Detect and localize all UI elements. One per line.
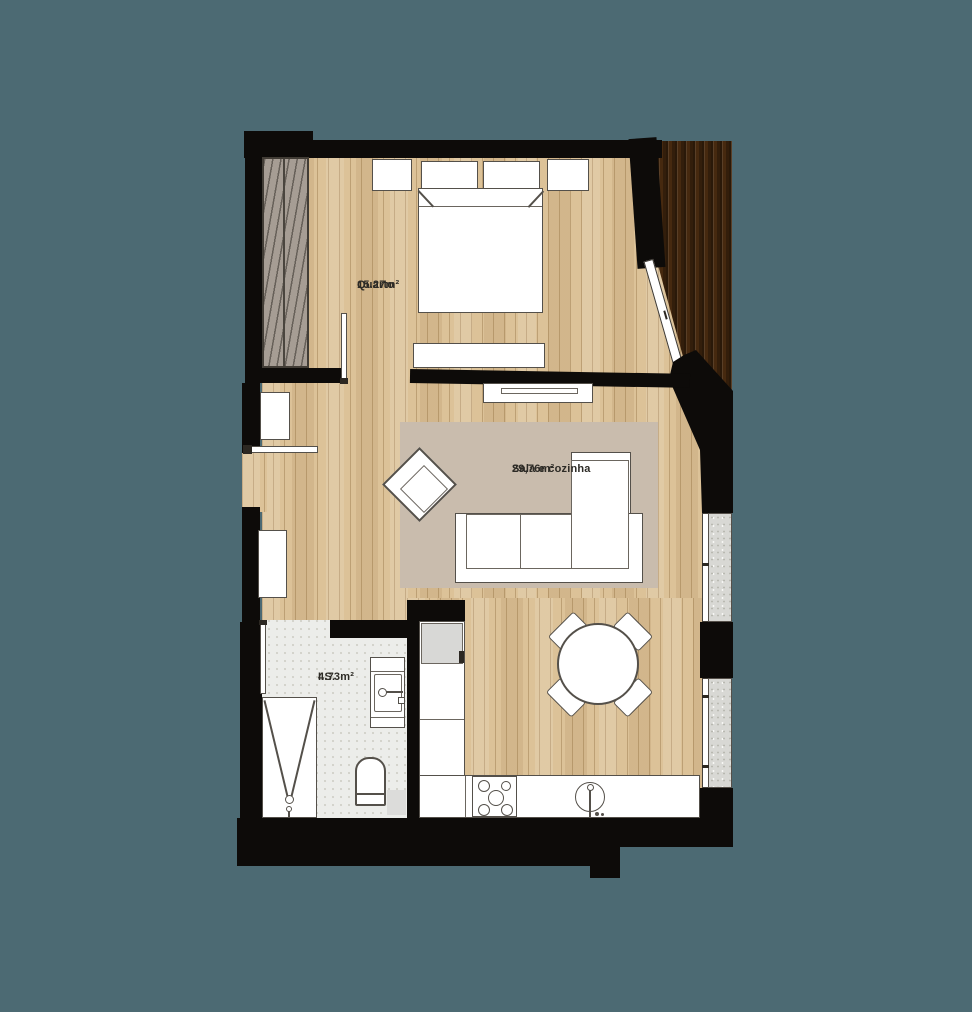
bedroom-door-hinge [340, 378, 348, 384]
vanity-bottom-divider [371, 717, 404, 718]
cooktop-burner [478, 804, 490, 816]
dining-table [557, 623, 639, 705]
vanity-control [398, 697, 405, 704]
shower-valve-stem [288, 811, 290, 818]
bottom-wall-strip [237, 818, 702, 833]
cooktop-burner [488, 790, 504, 806]
bedroom-dresser [413, 343, 545, 368]
sideboard-slot [501, 388, 578, 394]
sofa-seat-1 [466, 514, 521, 569]
toilet [355, 757, 386, 806]
sofa-seat-2 [520, 514, 572, 569]
fridge [421, 623, 463, 664]
window-frame-tick [702, 765, 709, 768]
bedroom-door-leaf [341, 313, 347, 383]
vanity-faucet [378, 688, 387, 697]
washing-machine [387, 790, 406, 815]
bottom-wall-thick [237, 833, 590, 866]
cooktop-burner [478, 780, 490, 792]
bathroom-left-wall [240, 622, 262, 818]
bathroom-area: 4.73m² [318, 671, 354, 684]
left-wall-upper [245, 131, 262, 383]
right-window-glass-lower [708, 678, 732, 788]
nightstand-left [372, 159, 412, 191]
bedroom-area: 15.27m² [357, 279, 399, 292]
window-frame-tick [702, 695, 709, 698]
entry-door-hinge [243, 445, 252, 454]
counter-column-divider [420, 719, 464, 720]
cooktop-burner [501, 804, 513, 816]
top-wall [312, 140, 662, 158]
fridge-handle [459, 651, 464, 663]
bathroom-top-wall [330, 620, 419, 638]
kitchen-tap [589, 790, 591, 818]
shower-drain [285, 795, 294, 804]
bottom-wall-right-strip [620, 833, 732, 847]
right-wall-between-windows [700, 622, 733, 678]
bathroom-door-hinge [259, 620, 267, 625]
hall-cabinet-upper [260, 392, 290, 440]
left-wall-entry [242, 383, 260, 453]
kitchen-tap-dot [595, 812, 599, 816]
vanity-spout [386, 691, 403, 693]
right-window-glass-upper [708, 513, 732, 622]
sofa-chaise-seat [571, 460, 629, 569]
toilet-tank-line [356, 793, 385, 795]
bottom-wall-step-block [590, 833, 620, 878]
cooktop-burner [501, 781, 511, 791]
vanity-top-divider [371, 671, 404, 672]
floor-plan: Quarto 15.27m² Sala e cozinha 29,76m² I.… [0, 0, 972, 1012]
bedroom-partition-left [258, 368, 346, 383]
nightstand-right [547, 159, 589, 191]
wardrobe-divider [283, 159, 285, 366]
bathroom-door-leaf [260, 622, 266, 694]
wardrobe [262, 157, 309, 368]
kitchen-top-wall [407, 600, 465, 621]
kitchen-counter-bottom [419, 775, 700, 818]
window-frame-tick [702, 563, 709, 566]
hall-cabinet-lower [258, 530, 287, 598]
duvet-edge-line [419, 206, 542, 207]
entry-threshold-floor [242, 447, 267, 512]
kitchen-tap-dot [601, 813, 604, 816]
counter-divider [465, 776, 466, 817]
entry-door-leaf [246, 446, 318, 453]
living-room-area: 29,76m² [512, 463, 554, 476]
